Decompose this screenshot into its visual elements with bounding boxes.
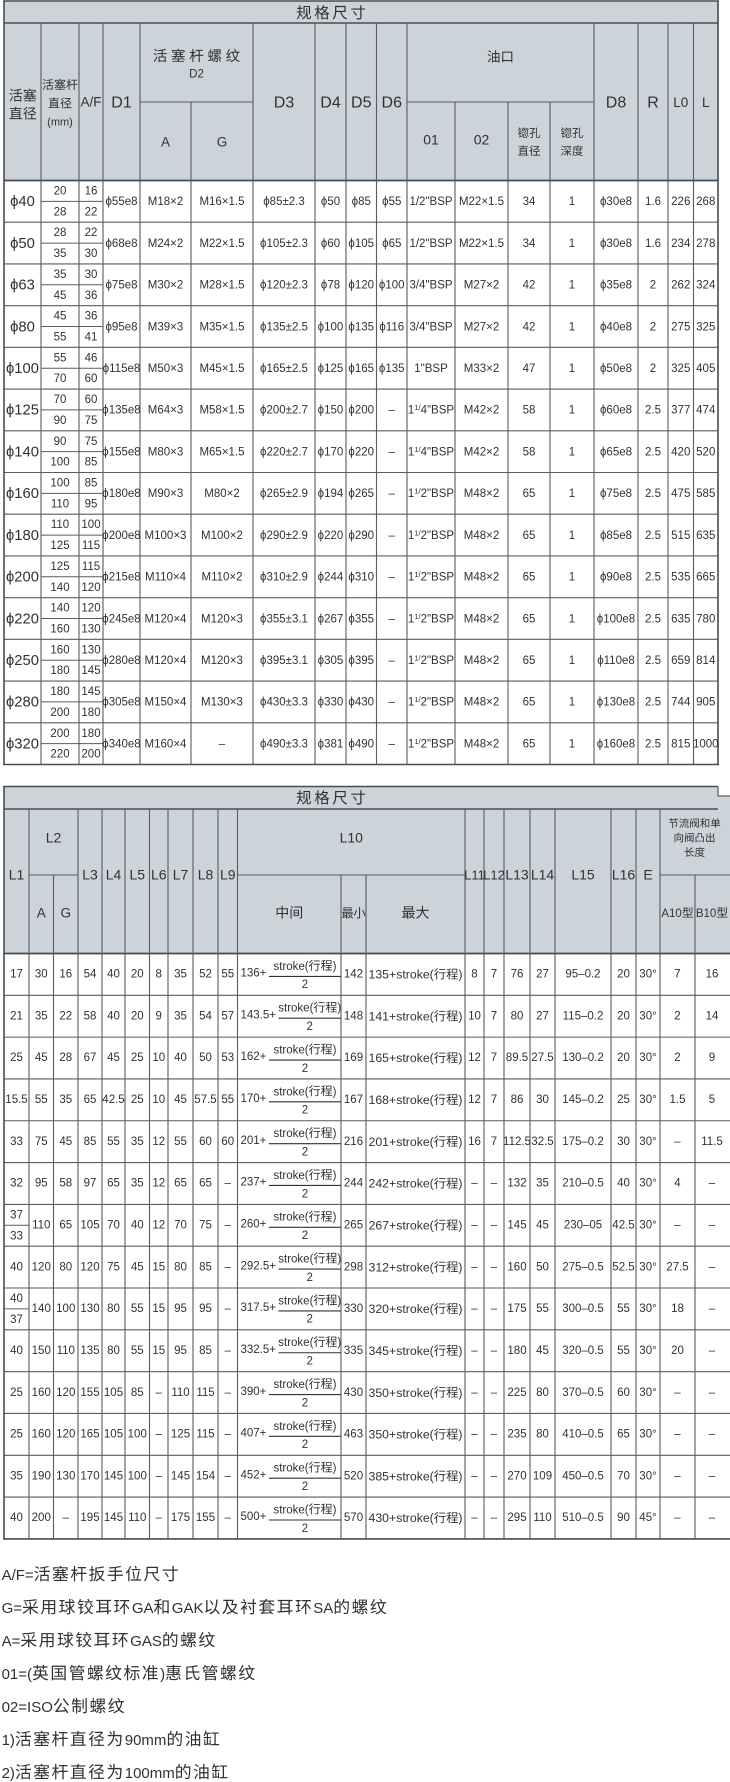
svg-text:500+: 500+	[241, 1511, 267, 1523]
svg-text:155: 155	[80, 1387, 99, 1399]
svg-text:55: 55	[131, 1345, 144, 1357]
svg-text:75: 75	[107, 1261, 120, 1273]
svg-text:ϕ305: ϕ305	[318, 655, 344, 667]
svg-text:27: 27	[536, 969, 549, 981]
svg-text:ϕ68e8: ϕ68e8	[105, 238, 137, 250]
svg-text:30°: 30°	[639, 1136, 656, 1148]
svg-text:130: 130	[56, 1470, 75, 1482]
svg-text:ϕ60: ϕ60	[321, 238, 340, 250]
svg-text:10: 10	[152, 1052, 165, 1064]
svg-text:ϕ180: ϕ180	[6, 528, 39, 544]
svg-text:7: 7	[491, 1010, 497, 1022]
svg-text:M150×4: M150×4	[145, 697, 187, 709]
svg-text:R: R	[647, 95, 659, 112]
svg-text:ϕ290: ϕ290	[348, 530, 374, 542]
svg-text:11/2"BSP: 11/2"BSP	[408, 528, 454, 542]
svg-text:332.5+: 332.5+	[241, 1344, 277, 1356]
svg-text:40: 40	[10, 1293, 23, 1305]
svg-text:stroke(: stroke(	[278, 1254, 313, 1266]
svg-text:12: 12	[152, 1136, 165, 1148]
svg-text:242+stroke(: 242+stroke(	[369, 1177, 435, 1191]
svg-text:): )	[337, 1254, 341, 1266]
svg-text:36: 36	[85, 290, 98, 302]
svg-text:14: 14	[706, 1010, 719, 1022]
svg-text:200: 200	[81, 749, 100, 761]
svg-text:40: 40	[10, 1261, 23, 1273]
svg-text:33: 33	[10, 1136, 23, 1148]
svg-text:235: 235	[507, 1429, 526, 1441]
svg-text:–: –	[709, 1345, 716, 1357]
svg-text:210–0.5: 210–0.5	[562, 1178, 604, 1190]
svg-text:292.5+: 292.5+	[241, 1260, 277, 1272]
svg-text:ϕ78: ϕ78	[321, 280, 340, 292]
svg-text:D8: D8	[606, 95, 627, 112]
svg-text:ϕ110e8: ϕ110e8	[597, 655, 635, 667]
svg-text:20: 20	[617, 969, 630, 981]
svg-text:ϕ381: ϕ381	[318, 738, 344, 750]
svg-text:30°: 30°	[639, 1261, 656, 1273]
svg-text:ϕ140: ϕ140	[6, 444, 39, 460]
svg-text:2: 2	[302, 1230, 308, 1242]
svg-text:65: 65	[523, 738, 536, 750]
svg-text:M27×2: M27×2	[464, 280, 499, 292]
svg-text:–: –	[389, 697, 396, 709]
svg-text:2: 2	[302, 1105, 308, 1117]
svg-text:47: 47	[523, 363, 536, 375]
svg-text:ϕ60e8: ϕ60e8	[600, 405, 632, 417]
svg-text:–: –	[471, 1219, 478, 1231]
svg-text:M160×4: M160×4	[145, 738, 187, 750]
svg-text:90: 90	[54, 436, 67, 448]
svg-text:–: –	[491, 1261, 498, 1273]
svg-text:2: 2	[674, 1010, 680, 1022]
svg-text:17: 17	[10, 969, 23, 981]
svg-text:ϕ30e8: ϕ30e8	[600, 238, 632, 250]
svg-text:M48×2: M48×2	[464, 530, 499, 542]
svg-text:57: 57	[221, 1010, 234, 1022]
svg-text:7: 7	[491, 1136, 497, 1148]
svg-text:M39×3: M39×3	[148, 321, 183, 333]
svg-text:25: 25	[10, 1387, 23, 1399]
svg-text:G=: G=	[2, 1600, 23, 1617]
svg-text:45: 45	[536, 1345, 549, 1357]
svg-text:110: 110	[51, 498, 69, 510]
svg-text:65: 65	[523, 572, 536, 584]
svg-text:275–0.5: 275–0.5	[562, 1261, 604, 1273]
svg-text:–: –	[225, 1178, 232, 1190]
svg-text:1.6: 1.6	[645, 238, 661, 250]
svg-text:–: –	[709, 1512, 716, 1524]
svg-text:270: 270	[507, 1470, 526, 1482]
svg-text:A10: A10	[661, 908, 681, 920]
svg-text:160: 160	[50, 624, 69, 636]
svg-text:12: 12	[152, 1219, 165, 1231]
svg-text:37: 37	[10, 1314, 23, 1326]
svg-text:1: 1	[569, 488, 575, 500]
svg-text:160: 160	[507, 1261, 526, 1273]
svg-text:170+: 170+	[241, 1093, 267, 1105]
svg-text:190: 190	[32, 1470, 51, 1482]
svg-text:30: 30	[35, 969, 48, 981]
svg-text:35: 35	[10, 1470, 23, 1482]
svg-text:): )	[458, 1302, 462, 1316]
svg-text:35: 35	[131, 1136, 144, 1148]
svg-text:M120×3: M120×3	[201, 655, 243, 667]
svg-text:–: –	[389, 572, 396, 584]
svg-text:–: –	[471, 1303, 478, 1315]
svg-text:ϕ150: ϕ150	[318, 405, 344, 417]
svg-text:G: G	[60, 906, 71, 921]
svg-text:130: 130	[81, 624, 100, 636]
svg-text:815: 815	[671, 738, 690, 750]
svg-text:80: 80	[59, 1261, 72, 1273]
svg-text:D6: D6	[382, 95, 403, 112]
svg-text:244: 244	[344, 1178, 364, 1190]
svg-text:80: 80	[107, 1345, 120, 1357]
svg-text:1: 1	[569, 238, 575, 250]
svg-text:M28×1.5: M28×1.5	[199, 280, 244, 292]
svg-text:ϕ75e8: ϕ75e8	[600, 488, 632, 500]
svg-text:3/4"BSP: 3/4"BSP	[409, 321, 452, 333]
svg-text:1000: 1000	[693, 738, 719, 750]
svg-text:30°: 30°	[639, 1429, 656, 1441]
svg-text:200: 200	[50, 728, 69, 740]
svg-text:L: L	[702, 95, 710, 110]
svg-text:–: –	[709, 1261, 716, 1273]
svg-text:ϕ340e8: ϕ340e8	[102, 738, 140, 750]
svg-text:02: 02	[474, 132, 490, 148]
svg-text:1: 1	[569, 321, 575, 333]
svg-text:30°: 30°	[639, 1219, 656, 1231]
svg-text:45: 45	[536, 1219, 549, 1231]
svg-text:–: –	[225, 1345, 232, 1357]
svg-text:105: 105	[104, 1429, 123, 1441]
svg-text:11/4"BSP: 11/4"BSP	[408, 445, 454, 459]
svg-text:): )	[458, 1051, 462, 1065]
svg-text:1: 1	[569, 363, 575, 375]
svg-text:120: 120	[80, 1261, 99, 1273]
svg-text:M64×3: M64×3	[148, 405, 183, 417]
svg-text:317.5+: 317.5+	[241, 1302, 277, 1314]
svg-text:175: 175	[507, 1303, 526, 1315]
svg-text:30°: 30°	[639, 1470, 656, 1482]
svg-text:SA: SA	[313, 1600, 333, 1617]
svg-text:100: 100	[128, 1429, 147, 1441]
svg-text:55: 55	[54, 332, 67, 344]
svg-text:55: 55	[221, 969, 234, 981]
svg-text:12: 12	[468, 1094, 481, 1106]
svg-text:2.5: 2.5	[645, 655, 661, 667]
svg-text:16: 16	[468, 1136, 481, 1148]
svg-text:20: 20	[131, 1010, 144, 1022]
svg-text:15.5: 15.5	[5, 1094, 27, 1106]
svg-text:stroke(: stroke(	[273, 1086, 308, 1098]
svg-text:ϕ220: ϕ220	[348, 446, 374, 458]
svg-text:M22×1.5: M22×1.5	[199, 238, 244, 250]
svg-text:01=(: 01=(	[2, 1666, 32, 1683]
svg-text:112.5: 112.5	[503, 1136, 531, 1148]
svg-text:L3: L3	[82, 867, 98, 883]
svg-text:370–0.5: 370–0.5	[562, 1387, 604, 1399]
svg-text:262: 262	[671, 280, 690, 292]
svg-text:407+: 407+	[241, 1428, 267, 1440]
svg-text:385+stroke(: 385+stroke(	[369, 1469, 435, 1483]
svg-text:105: 105	[104, 1387, 123, 1399]
svg-text:M22×1.5: M22×1.5	[459, 238, 504, 250]
svg-text:520: 520	[696, 446, 715, 458]
svg-text:97: 97	[84, 1178, 97, 1190]
svg-text:A/F: A/F	[80, 95, 101, 110]
svg-text:L6: L6	[151, 867, 167, 883]
svg-text:80: 80	[536, 1387, 549, 1399]
svg-text:ϕ200±2.7: ϕ200±2.7	[260, 405, 308, 417]
svg-text:ϕ105: ϕ105	[348, 238, 374, 250]
svg-text:stroke(: stroke(	[273, 1463, 308, 1475]
svg-text:65: 65	[523, 655, 536, 667]
svg-text:11/4"BSP: 11/4"BSP	[408, 403, 454, 417]
svg-text:ϕ65: ϕ65	[382, 238, 401, 250]
svg-text:905: 905	[696, 697, 715, 709]
svg-text:325: 325	[671, 363, 690, 375]
svg-text:55: 55	[617, 1303, 630, 1315]
svg-text:M130×3: M130×3	[201, 697, 243, 709]
svg-text:ϕ200: ϕ200	[348, 405, 374, 417]
svg-text:30: 30	[536, 1094, 549, 1106]
svg-text:ϕ215e8: ϕ215e8	[102, 572, 140, 584]
svg-text:–: –	[491, 1429, 498, 1441]
svg-text:135: 135	[80, 1345, 99, 1357]
svg-text:M50×3: M50×3	[148, 363, 183, 375]
svg-text:11/2"BSP: 11/2"BSP	[408, 737, 454, 751]
svg-text:1: 1	[569, 572, 575, 584]
svg-text:G: G	[217, 134, 228, 149]
svg-text:ϕ100: ϕ100	[6, 361, 39, 377]
svg-text:67: 67	[84, 1052, 97, 1064]
svg-text:1: 1	[569, 697, 575, 709]
svg-text:140: 140	[50, 603, 69, 615]
svg-text:11/2"BSP: 11/2"BSP	[408, 487, 454, 501]
svg-text:ϕ95e8: ϕ95e8	[105, 321, 137, 333]
svg-text:53: 53	[221, 1052, 234, 1064]
svg-text:ϕ30e8: ϕ30e8	[600, 196, 632, 208]
svg-text:70: 70	[54, 373, 67, 385]
svg-text:–: –	[389, 613, 396, 625]
svg-text:100: 100	[50, 457, 69, 469]
svg-text:ϕ125: ϕ125	[318, 363, 344, 375]
svg-text:ϕ80: ϕ80	[10, 319, 35, 335]
svg-text:405: 405	[696, 363, 715, 375]
svg-text:95: 95	[174, 1303, 187, 1315]
svg-text:320+stroke(: 320+stroke(	[369, 1302, 435, 1316]
svg-text:180: 180	[81, 728, 100, 740]
svg-text:L9: L9	[220, 867, 236, 883]
svg-text:A=: A=	[2, 1633, 21, 1650]
svg-text:40: 40	[617, 1178, 630, 1190]
svg-text:): )	[458, 1428, 462, 1442]
svg-text:130: 130	[81, 644, 100, 656]
svg-text:2.5: 2.5	[645, 613, 661, 625]
svg-text:148: 148	[344, 1010, 363, 1022]
svg-text:M33×2: M33×2	[464, 363, 499, 375]
svg-text:267+stroke(: 267+stroke(	[369, 1218, 435, 1232]
svg-text:65: 65	[107, 1178, 120, 1190]
svg-text:–: –	[491, 1387, 498, 1399]
svg-text:115: 115	[82, 540, 100, 552]
svg-text:60: 60	[199, 1136, 212, 1148]
svg-text:–: –	[389, 738, 396, 750]
svg-text:154: 154	[196, 1470, 216, 1482]
svg-text:85: 85	[199, 1345, 212, 1357]
svg-text:201+: 201+	[241, 1135, 267, 1147]
svg-text:22: 22	[59, 1010, 72, 1022]
svg-text:2: 2	[674, 1052, 680, 1064]
svg-text:GAS: GAS	[130, 1633, 162, 1650]
svg-text:12: 12	[152, 1178, 165, 1190]
svg-text:58: 58	[523, 446, 536, 458]
svg-text:90mm: 90mm	[125, 1732, 167, 1749]
svg-text:165+stroke(: 165+stroke(	[369, 1051, 435, 1065]
svg-text:89.5: 89.5	[506, 1052, 528, 1064]
svg-text:33: 33	[10, 1230, 23, 1242]
svg-text:65: 65	[174, 1178, 187, 1190]
svg-text:ϕ40e8: ϕ40e8	[600, 321, 632, 333]
svg-text:90: 90	[617, 1512, 630, 1524]
svg-text:L1: L1	[9, 867, 25, 883]
svg-text:M42×2: M42×2	[464, 446, 499, 458]
svg-text:): )	[333, 1504, 337, 1516]
svg-text:85: 85	[199, 1261, 212, 1273]
svg-text:86: 86	[511, 1094, 524, 1106]
svg-text:stroke(: stroke(	[273, 1504, 308, 1516]
svg-text:180: 180	[507, 1345, 526, 1357]
svg-text:(mm): (mm)	[47, 117, 73, 129]
svg-text:200: 200	[50, 707, 69, 719]
svg-text:16: 16	[59, 969, 72, 981]
svg-text:L0: L0	[673, 95, 688, 110]
svg-text:76: 76	[511, 969, 524, 981]
svg-text:2.5: 2.5	[645, 446, 661, 458]
svg-text:ϕ40: ϕ40	[10, 194, 35, 210]
svg-text:ϕ116: ϕ116	[379, 321, 404, 333]
svg-text:21: 21	[10, 1010, 23, 1022]
svg-text:40: 40	[174, 1052, 187, 1064]
svg-text:15: 15	[152, 1303, 165, 1315]
svg-text:814: 814	[696, 655, 716, 667]
svg-text:1: 1	[569, 738, 575, 750]
svg-text:2: 2	[302, 1439, 308, 1451]
svg-text:2.5: 2.5	[645, 572, 661, 584]
svg-text:stroke(: stroke(	[278, 1295, 313, 1307]
svg-text:45: 45	[35, 1052, 48, 1064]
svg-text:): )	[333, 1379, 337, 1391]
svg-text:32.5: 32.5	[531, 1136, 553, 1148]
svg-text:–: –	[225, 1303, 232, 1315]
svg-text:E: E	[643, 867, 652, 883]
svg-text:): )	[337, 1337, 341, 1349]
svg-text:130–0.2: 130–0.2	[562, 1052, 604, 1064]
svg-text:42.5: 42.5	[102, 1094, 124, 1106]
svg-text:75: 75	[199, 1219, 212, 1231]
svg-text:54: 54	[84, 969, 97, 981]
svg-text:80: 80	[107, 1303, 120, 1315]
svg-text:145: 145	[104, 1470, 123, 1482]
svg-text:–: –	[674, 1470, 681, 1482]
svg-text:ϕ194: ϕ194	[318, 488, 344, 500]
svg-text:ϕ65e8: ϕ65e8	[600, 446, 632, 458]
svg-text:45: 45	[174, 1094, 187, 1106]
svg-text:1/2"BSP: 1/2"BSP	[409, 196, 452, 208]
svg-text:ϕ250: ϕ250	[6, 653, 39, 669]
svg-text:58: 58	[59, 1178, 72, 1190]
svg-text:110: 110	[128, 1512, 146, 1524]
svg-text:2: 2	[650, 321, 656, 333]
svg-text:430: 430	[344, 1387, 363, 1399]
svg-text:M120×4: M120×4	[145, 655, 187, 667]
svg-text:420: 420	[671, 446, 690, 458]
svg-text:1.6: 1.6	[645, 196, 661, 208]
svg-text:M45×1.5: M45×1.5	[199, 363, 244, 375]
svg-text:665: 665	[696, 572, 715, 584]
svg-text:L2: L2	[46, 830, 62, 846]
svg-text:D5: D5	[351, 95, 372, 112]
svg-text:1"BSP: 1"BSP	[414, 363, 448, 375]
svg-text:A/F=: A/F=	[2, 1567, 34, 1584]
svg-text:2): 2)	[2, 1765, 15, 1782]
svg-text:180: 180	[50, 686, 69, 698]
svg-text:50: 50	[199, 1052, 212, 1064]
svg-text:20: 20	[131, 969, 144, 981]
svg-text:25: 25	[617, 1094, 630, 1106]
svg-text:320–0.5: 320–0.5	[562, 1345, 604, 1357]
svg-text:570: 570	[344, 1512, 363, 1524]
svg-text:–: –	[491, 1345, 498, 1357]
svg-text:25: 25	[131, 1052, 144, 1064]
svg-text:9: 9	[709, 1052, 715, 1064]
svg-text:46: 46	[85, 352, 98, 364]
svg-text:): )	[333, 1170, 337, 1182]
svg-text:260+: 260+	[241, 1218, 267, 1230]
svg-text:150: 150	[32, 1345, 51, 1357]
svg-text:110: 110	[171, 1387, 189, 1399]
svg-text:377: 377	[671, 405, 690, 417]
svg-text:ϕ155e8: ϕ155e8	[102, 446, 140, 458]
svg-text:65: 65	[199, 1178, 212, 1190]
svg-text:11/2"BSP: 11/2"BSP	[408, 612, 454, 626]
svg-text:145: 145	[171, 1470, 190, 1482]
svg-text:226: 226	[671, 196, 690, 208]
svg-text:4: 4	[674, 1178, 681, 1190]
svg-text:2: 2	[302, 1063, 308, 1075]
svg-text:M80×2: M80×2	[204, 488, 239, 500]
svg-text:65: 65	[59, 1219, 72, 1231]
svg-text:57.5: 57.5	[194, 1094, 216, 1106]
svg-text:M48×2: M48×2	[464, 488, 499, 500]
svg-text:ϕ75e8: ϕ75e8	[105, 280, 137, 292]
svg-text:1: 1	[569, 280, 575, 292]
svg-text:65: 65	[523, 613, 536, 625]
svg-text:): )	[337, 1003, 341, 1015]
svg-text:125: 125	[50, 540, 69, 552]
svg-text:55: 55	[54, 352, 67, 364]
svg-text:ϕ120: ϕ120	[348, 280, 374, 292]
svg-text:): )	[333, 961, 337, 973]
svg-text:ϕ100: ϕ100	[318, 321, 344, 333]
svg-text:390+: 390+	[241, 1386, 267, 1398]
svg-text:ϕ355: ϕ355	[348, 613, 374, 625]
svg-text:180: 180	[50, 665, 69, 677]
svg-text:–: –	[471, 1387, 478, 1399]
svg-text:D1: D1	[111, 95, 132, 112]
